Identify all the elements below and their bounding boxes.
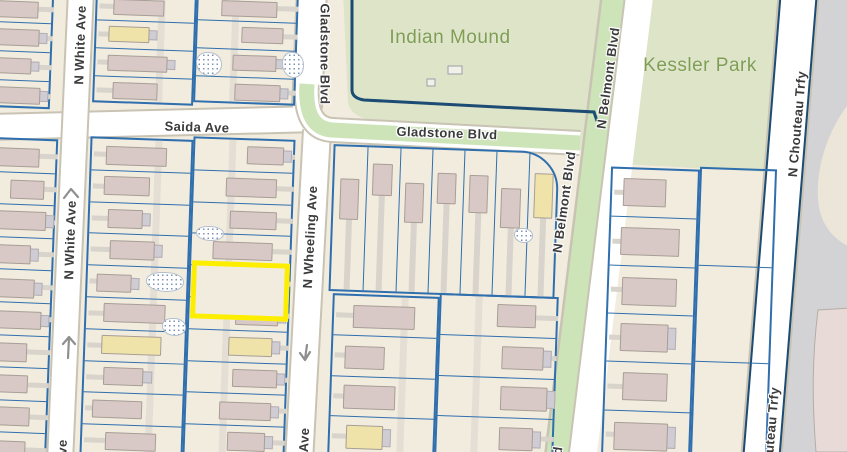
building: [110, 240, 156, 260]
east-pink-parcel: [813, 308, 847, 452]
building: [106, 146, 167, 167]
parcel-block: [601, 167, 700, 452]
stipple-patch: [196, 52, 222, 76]
map-canvas[interactable]: N White Ave N White Ave N White Ave Said…: [0, 0, 847, 452]
building: [0, 147, 40, 168]
building: [620, 227, 680, 257]
building: [0, 0, 38, 19]
building: [623, 178, 667, 208]
street-label-saida-ave: Saida Ave: [164, 118, 229, 135]
parcel-line: [460, 151, 466, 294]
stipple-patch: [196, 226, 224, 241]
building: [10, 180, 45, 200]
building: [345, 345, 385, 370]
building: [0, 341, 27, 362]
parcel-block: [0, 0, 54, 109]
parcel-line: [88, 264, 187, 268]
stipple-patch: [282, 52, 304, 78]
parcel-line: [606, 361, 691, 365]
building: [500, 188, 521, 229]
parcel-line: [0, 366, 47, 369]
driveway: [376, 192, 385, 291]
parcel-block: [79, 136, 193, 452]
building: [228, 337, 273, 357]
building: [0, 28, 40, 47]
parcel-line: [97, 19, 194, 23]
building: [0, 309, 42, 330]
parcel-line: [187, 392, 285, 396]
parcel-line: [699, 264, 772, 268]
parcel-block: [690, 167, 777, 452]
driveway: [441, 200, 450, 293]
parcel-line: [91, 169, 190, 173]
parcel-line: [395, 148, 401, 291]
driveway: [27, 349, 51, 355]
alley: [470, 296, 482, 452]
building: [346, 425, 384, 450]
parcel-line: [0, 203, 54, 206]
parcel-line: [89, 233, 188, 237]
driveway: [84, 437, 107, 443]
building: [436, 173, 456, 205]
driveway: [28, 382, 49, 388]
parcel-line: [198, 19, 296, 23]
parcel-line: [188, 360, 286, 364]
park-label-kessler-park: Kessler Park: [643, 55, 757, 77]
building: [101, 335, 162, 356]
building: [108, 26, 150, 44]
building: [0, 56, 31, 75]
parcel-line: [193, 201, 291, 205]
parcel-line: [0, 301, 50, 304]
building: [0, 373, 28, 394]
building: [107, 54, 168, 72]
parcel-line: [332, 375, 435, 380]
building: [104, 432, 156, 452]
parcel-block: [327, 293, 440, 452]
parcel-line: [90, 201, 189, 205]
building: [0, 86, 40, 105]
building: [247, 146, 285, 166]
parcel-line: [96, 47, 193, 51]
parcel-line: [608, 313, 693, 317]
driveway: [277, 186, 294, 192]
park-building: [427, 79, 435, 86]
street-label-n-white-ave: N White Ave: [52, 439, 70, 452]
parcel-line: [524, 153, 530, 296]
parcel-line: [333, 334, 436, 339]
building: [241, 27, 284, 45]
driveway: [39, 154, 57, 160]
park-label-indian-mound: Indian Mound: [389, 27, 510, 49]
building: [113, 0, 164, 17]
building: [372, 163, 392, 196]
building: [343, 385, 396, 410]
building: [212, 241, 273, 262]
parcel-block: [434, 293, 559, 452]
driveway: [283, 34, 297, 39]
stipple-patch: [146, 272, 184, 292]
parcel-line: [186, 423, 284, 427]
highlighted-parcel[interactable]: [190, 260, 290, 321]
parcel-line: [427, 150, 433, 293]
parcel-line: [0, 333, 49, 336]
building: [104, 176, 150, 196]
parcel-line: [194, 169, 292, 173]
stipple-patch: [162, 318, 186, 336]
parcel-line: [189, 328, 287, 332]
building: [0, 210, 47, 231]
parcel-line: [0, 79, 49, 82]
parcel-line: [0, 170, 55, 173]
parcel-line: [0, 21, 51, 24]
street-label-gladstone-blvd: Gladstone Blvd: [318, 4, 333, 105]
road-n-wheeling-ave: [299, 130, 317, 452]
parcel-line: [611, 216, 696, 220]
driveway: [277, 6, 298, 12]
driveway: [38, 6, 54, 12]
parcel-line: [439, 374, 554, 379]
parcel-line: [0, 268, 51, 271]
building: [500, 387, 547, 412]
building: [622, 372, 668, 402]
building: [96, 273, 132, 293]
building: [112, 82, 158, 100]
building: [499, 427, 534, 452]
parcel-line: [0, 431, 45, 434]
stipple-patch: [514, 228, 533, 243]
building: [226, 178, 278, 198]
building: [468, 175, 489, 214]
building: [339, 178, 360, 220]
driveway: [537, 214, 546, 297]
building: [353, 305, 415, 330]
building: [232, 54, 277, 72]
parcel-line: [363, 147, 369, 290]
building: [103, 303, 165, 324]
building: [613, 421, 668, 451]
driveway: [44, 187, 56, 192]
parcel-line: [331, 415, 434, 420]
parcel-line: [95, 75, 192, 79]
building: [497, 304, 536, 329]
building: [234, 84, 281, 102]
parcel-line: [0, 236, 52, 239]
street-label-n-white-ave: N White Ave: [61, 200, 79, 280]
driveway: [25, 447, 46, 452]
building: [221, 0, 277, 18]
building: [620, 323, 668, 353]
building: [227, 432, 265, 452]
building: [0, 277, 34, 298]
driveway: [505, 224, 513, 295]
driveway: [91, 247, 112, 253]
building: [219, 401, 271, 421]
building: [0, 243, 31, 264]
driveway: [473, 209, 482, 294]
building: [91, 399, 141, 419]
driveway: [276, 218, 292, 224]
building: [103, 367, 144, 387]
building: [621, 277, 677, 307]
building: [108, 209, 144, 229]
parcel-line: [610, 264, 695, 268]
parcel-line: [84, 392, 183, 396]
parcel-line: [492, 152, 498, 295]
building: [0, 406, 30, 427]
building: [0, 439, 26, 452]
parcel-block: [92, 0, 197, 106]
parcel-line: [0, 398, 46, 401]
building: [404, 182, 425, 223]
street-label-n-white-ave: N White Ave: [71, 5, 89, 85]
driveway: [344, 216, 353, 290]
building: [230, 210, 277, 230]
park-building: [448, 66, 462, 74]
building: [533, 173, 554, 218]
parcel-line: [87, 296, 186, 300]
parcel-line: [695, 361, 768, 365]
road-saida-ave: [0, 119, 318, 127]
parcel-line: [605, 409, 690, 413]
driveway: [273, 249, 292, 255]
driveway: [29, 415, 47, 421]
driveway: [408, 218, 417, 292]
parcel-line: [438, 415, 553, 420]
parcel-line: [197, 47, 295, 51]
building: [232, 369, 278, 389]
parcel-line: [440, 334, 555, 339]
driveway: [535, 315, 558, 321]
building: [501, 346, 543, 371]
parcel-line: [83, 423, 182, 427]
parcel-block: [329, 144, 560, 299]
parcel-line: [85, 360, 184, 364]
parcel-line: [0, 50, 50, 53]
